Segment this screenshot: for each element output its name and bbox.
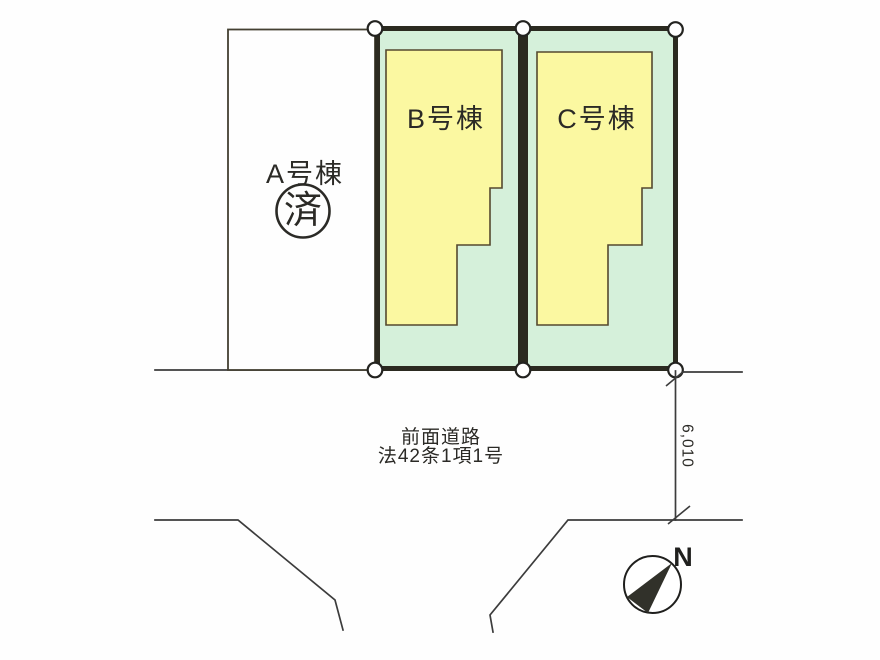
north-compass-icon: N bbox=[624, 542, 693, 613]
boundary-marker bbox=[516, 363, 531, 378]
road-opposite-edge-right bbox=[490, 520, 742, 632]
boundary-marker bbox=[668, 22, 683, 37]
road-opposite-edge-left bbox=[155, 520, 343, 630]
lot-c-label: C号棟 bbox=[557, 104, 637, 134]
boundary-marker bbox=[368, 363, 383, 378]
dimension-tick-bottom bbox=[668, 506, 690, 524]
lot-b: B号棟 bbox=[378, 29, 521, 369]
dimension-label: 6,010 bbox=[679, 424, 696, 468]
lot-b-label: B号棟 bbox=[407, 104, 485, 134]
sold-stamp-text: 済 bbox=[284, 190, 322, 232]
site-plan: A号棟 済 B号棟 C号棟 6,010 前面道路 法42条1項1号 bbox=[0, 0, 880, 660]
lot-a: A号棟 済 bbox=[228, 30, 375, 371]
road-width-dimension: 6,010 bbox=[666, 371, 696, 524]
site-plan-canvas: A号棟 済 B号棟 C号棟 6,010 前面道路 法42条1項1号 bbox=[0, 0, 880, 660]
boundary-marker bbox=[516, 21, 531, 36]
boundary-marker bbox=[368, 21, 383, 36]
road-law-label: 法42条1項1号 bbox=[378, 445, 504, 467]
road-annotation: 前面道路 法42条1項1号 bbox=[378, 426, 504, 467]
north-label: N bbox=[673, 542, 693, 572]
road-name-label: 前面道路 bbox=[401, 426, 481, 448]
lot-c: C号棟 bbox=[526, 29, 676, 369]
